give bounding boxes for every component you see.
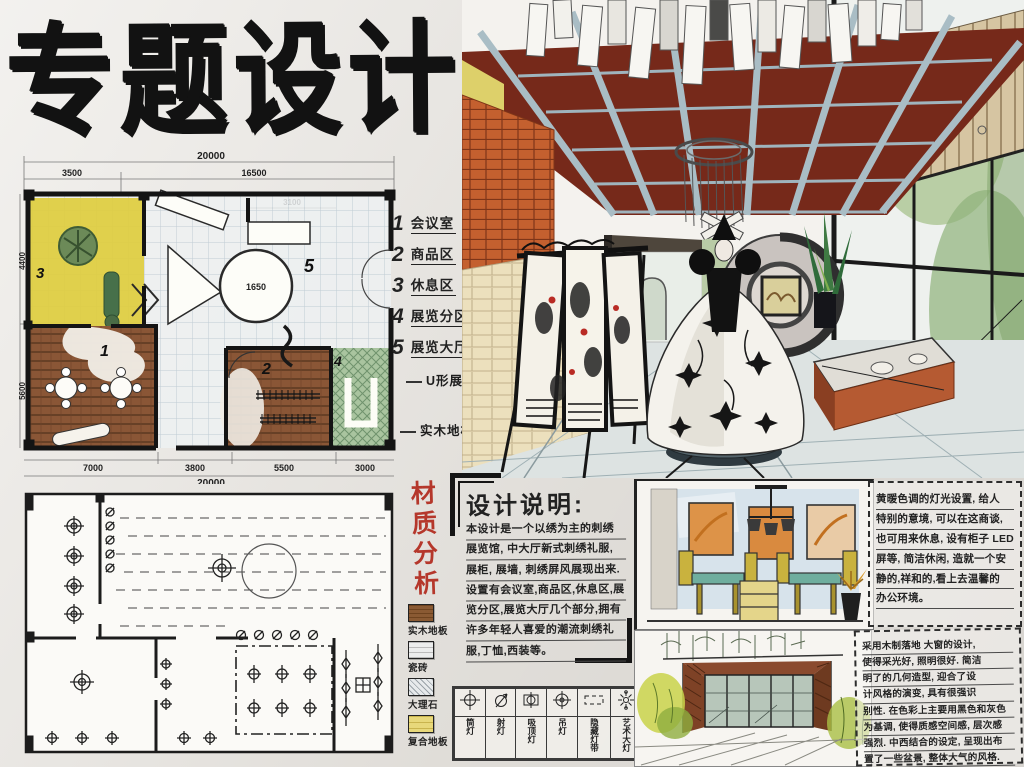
lamp-legend-table: 筒灯 射灯 吸顶灯 吊灯 隐藏灯带 艺术大灯 <box>452 686 644 761</box>
exterior-sketch <box>634 630 872 767</box>
pendant-lamp-icon <box>547 689 578 717</box>
svg-text:4: 4 <box>333 353 342 369</box>
design-description-title: 设计说明: <box>466 484 627 522</box>
svg-text:20000: 20000 <box>197 151 225 162</box>
spotlight-icon <box>485 689 516 717</box>
svg-text:7000: 7000 <box>83 463 103 473</box>
downlight-icon <box>455 689 486 717</box>
floor-plan: 20000 3500 16500 3100 4400 5600 7000 380… <box>16 146 402 484</box>
dining-room-sketch <box>634 479 874 630</box>
svg-text:3500: 3500 <box>62 168 82 178</box>
svg-text:2: 2 <box>261 361 271 378</box>
svg-text:20000: 20000 <box>197 478 225 484</box>
svg-text:3: 3 <box>36 265 45 282</box>
svg-text:5500: 5500 <box>274 463 294 473</box>
lamp-label: 筒灯 <box>465 718 474 735</box>
lamp-label: 吊灯 <box>558 718 567 735</box>
perspective-rendering <box>462 0 1024 478</box>
note-lounge-lighting: 黄暖色调的灯光设置, 给人 特别的意境, 可以在这商谈, 也可用来休息, 设有柜… <box>868 481 1022 627</box>
hidden-strip-icon <box>577 689 610 717</box>
marble-swatch <box>408 678 434 696</box>
note-facade-design: 采用木制落地 大窗的设计, 使得采光好, 照明很好. 简洁 明了的几何造型, 迎… <box>854 628 1023 767</box>
wood-floor-swatch <box>408 604 434 622</box>
design-description: 设计说明: 本设计是一个以绣为主的刺绣 展览馆, 中大厅新式刺绣礼服, 展柜, … <box>452 477 634 677</box>
plan-interior: 1650 <box>28 190 391 448</box>
presentation-board: 专题设计 20000 <box>0 0 1024 767</box>
lamp-label: 吸顶灯 <box>527 718 536 744</box>
title-calligraphy: 专题设计 <box>6 2 462 140</box>
ceiling-lamp-icon <box>516 689 547 717</box>
reflected-ceiling-plan <box>16 486 402 767</box>
svg-text:1: 1 <box>100 343 109 360</box>
page-title: 专题设计 <box>5 0 462 160</box>
lamp-label: 隐藏灯带 <box>590 718 599 752</box>
laminate-swatch <box>408 715 434 733</box>
svg-text:3000: 3000 <box>355 463 375 473</box>
svg-text:1650: 1650 <box>246 282 266 292</box>
tile-swatch <box>408 641 434 659</box>
material-analysis-title: 材质分析 <box>408 480 437 601</box>
svg-text:16500: 16500 <box>241 168 266 178</box>
svg-text:3800: 3800 <box>185 463 205 473</box>
svg-text:5: 5 <box>304 256 315 276</box>
lamp-label: 射灯 <box>496 718 505 735</box>
lamp-label: 艺术大灯 <box>622 718 631 752</box>
